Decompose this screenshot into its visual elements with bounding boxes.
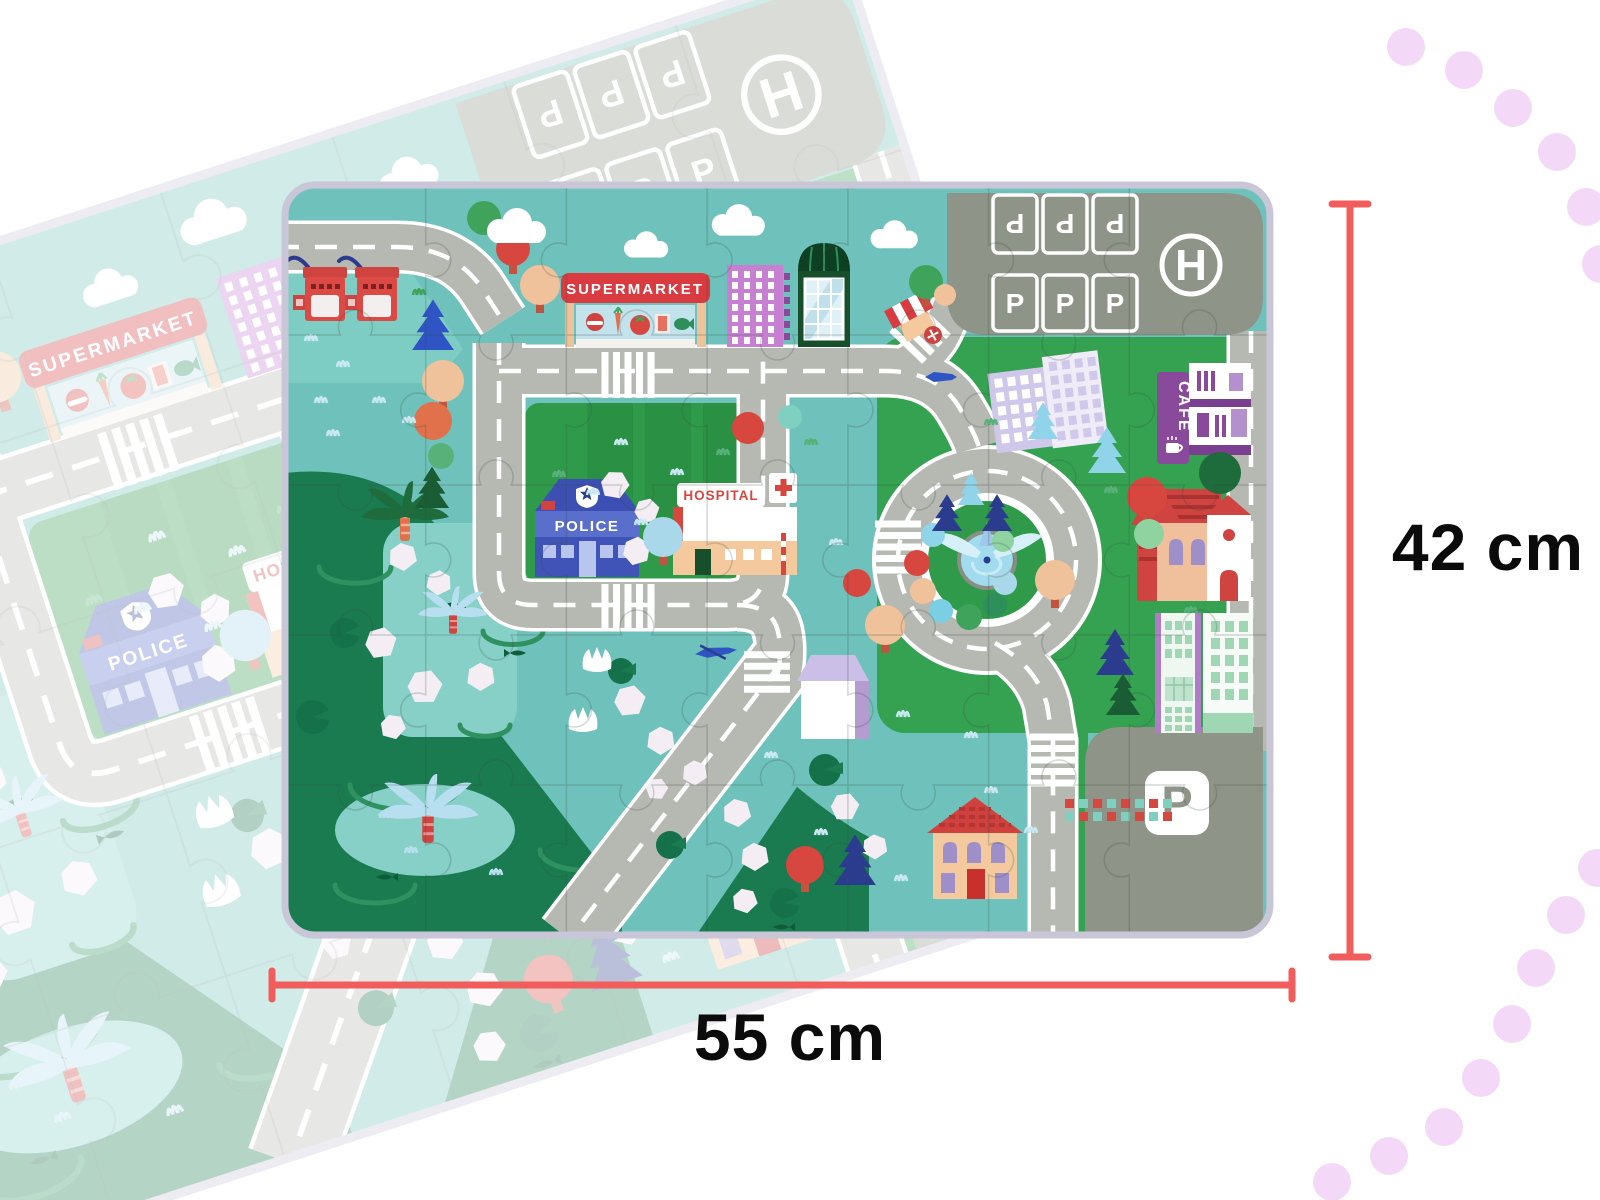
decor-dot — [1462, 1059, 1500, 1097]
decor-dot — [1445, 51, 1483, 89]
decor-dot — [1538, 133, 1576, 171]
decor-dot — [1494, 89, 1532, 127]
height-label: 42 cm — [1392, 510, 1584, 584]
decor-dot — [1425, 1108, 1463, 1146]
product-image: P P P P P P H P — [0, 0, 1600, 1200]
decor-dot — [1370, 1137, 1408, 1175]
decor-dot — [1313, 1163, 1351, 1200]
decor-dot — [1547, 896, 1585, 934]
decor-dot — [1387, 28, 1425, 66]
width-label: 55 cm — [694, 1000, 886, 1074]
decor-dot — [1517, 949, 1555, 987]
scene-svg: P P P P P P H P — [0, 0, 1600, 1200]
decor-dot — [1493, 1005, 1531, 1043]
